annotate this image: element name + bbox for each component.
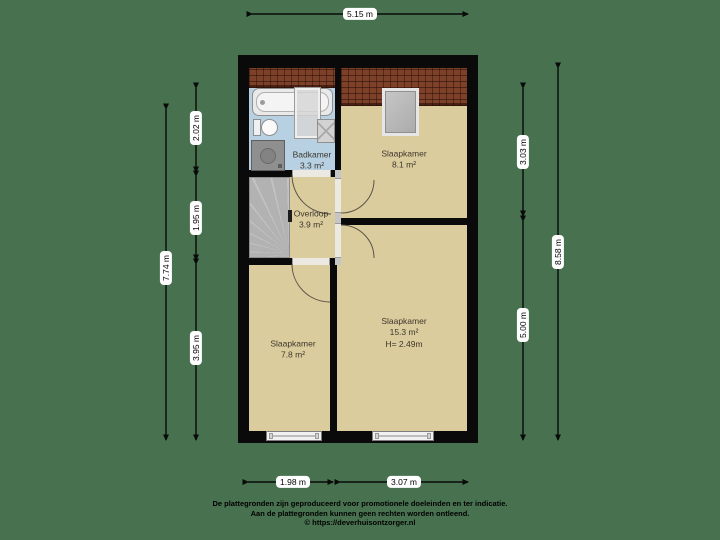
footer-line-3: © https://deverhuisontzorger.nl [0, 518, 720, 528]
room-label-badkamer: Badkamer 3.3 m² [293, 150, 332, 173]
room-area: 8.1 m² [381, 160, 426, 171]
floorplan-canvas: Badkamer 3.3 m² Slaapkamer 8.1 m² Overlo… [0, 0, 720, 540]
window-pane [377, 435, 430, 436]
room-name: Slaapkamer [381, 149, 426, 160]
room-label-slaapkamer-top: Slaapkamer 8.1 m² [381, 149, 426, 172]
stair-handrail [288, 210, 292, 222]
room-label-slaapkamer-right: Slaapkamer 15.3 m² H= 2.49m [381, 316, 426, 350]
dim-label-bottom-1: 1.98 m [276, 476, 310, 488]
dim-label-left-inner-1: 2.02 m [190, 111, 202, 145]
staircase [249, 177, 290, 258]
door-opening-slaapkamer-top [335, 178, 341, 213]
bathtub-faucet [260, 100, 265, 105]
toilet-icon [261, 119, 278, 136]
room-area: 3.9 m² [294, 220, 329, 231]
room-name: Slaapkamer [381, 316, 426, 327]
window-jamb [375, 433, 379, 439]
window-jamb [269, 433, 273, 439]
room-label-overloop: Overloop 3.9 m² [294, 209, 329, 232]
room-name: Overloop [294, 209, 329, 220]
window-slaapkamer-left-icon [266, 431, 322, 441]
footer-line-2: Aan de plattegronden kunnen geen rechten… [0, 509, 720, 519]
dim-label-bottom-2: 3.07 m [387, 476, 421, 488]
wall-badkamer-slaapkamer [335, 68, 341, 170]
dormer-window-icon [382, 88, 419, 136]
door-opening-slaapkamer-right [335, 223, 341, 258]
footer-line-1: De plattegronden zijn geproduceerd voor … [0, 499, 720, 509]
toilet-tank-icon [253, 119, 261, 136]
roof-tiles-left [249, 68, 335, 88]
window-slaapkamer-right-icon [372, 431, 434, 441]
dim-label-right-inner-1: 3.03 m [517, 135, 529, 169]
room-area: 15.3 m² [381, 327, 426, 338]
dim-label-right-outer: 8.58 m [552, 235, 564, 269]
washer-knob [278, 164, 282, 168]
shower-tray-icon [317, 119, 335, 143]
bathtub-icon [252, 88, 333, 116]
room-label-slaapkamer-left: Slaapkamer 7.8 m² [270, 339, 315, 362]
window-jamb [427, 433, 431, 439]
washing-machine-icon [251, 140, 285, 171]
room-height: H= 2.49m [381, 339, 426, 350]
window-pane [270, 435, 318, 436]
dim-label-left-outer: 7.74 m [160, 251, 172, 285]
room-area: 3.3 m² [293, 161, 332, 172]
dim-label-top: 5.15 m [343, 8, 377, 20]
dim-label-left-inner-3: 3.95 m [190, 331, 202, 365]
room-name: Badkamer [293, 150, 332, 161]
wall-between-bedrooms-vertical [330, 265, 337, 431]
door-opening-slaapkamer-left [292, 258, 330, 265]
room-name: Slaapkamer [270, 339, 315, 350]
dim-label-left-inner-2: 1.95 m [190, 201, 202, 235]
washer-drum [260, 148, 276, 164]
room-area: 7.8 m² [270, 350, 315, 361]
wall-between-bedrooms-horizontal [341, 218, 467, 225]
dim-label-right-inner-2: 5.00 m [517, 308, 529, 342]
footer-disclaimer: De plattegronden zijn geproduceerd voor … [0, 499, 720, 528]
window-jamb [315, 433, 319, 439]
